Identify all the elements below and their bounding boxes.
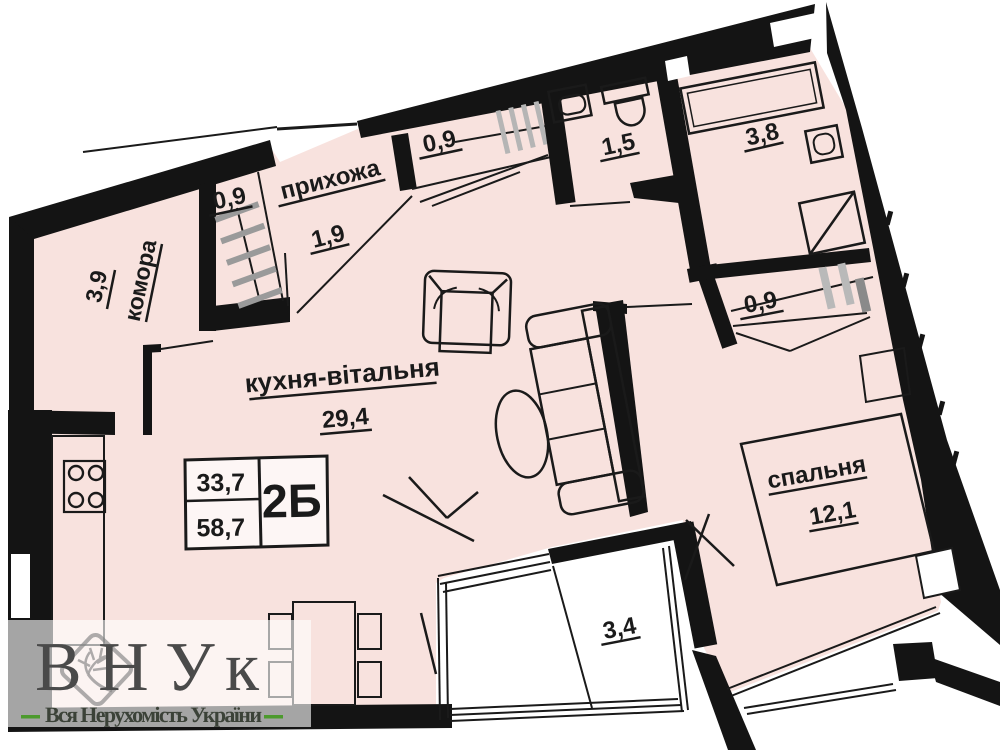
svg-text:33,7: 33,7 [196, 469, 245, 498]
svg-text:2Б: 2Б [261, 473, 322, 527]
svg-text:Вся Нерухомість України: Вся Нерухомість України [45, 702, 262, 727]
svg-text:58,7: 58,7 [196, 514, 245, 543]
svg-text:ВНУк: ВНУк [35, 629, 260, 706]
